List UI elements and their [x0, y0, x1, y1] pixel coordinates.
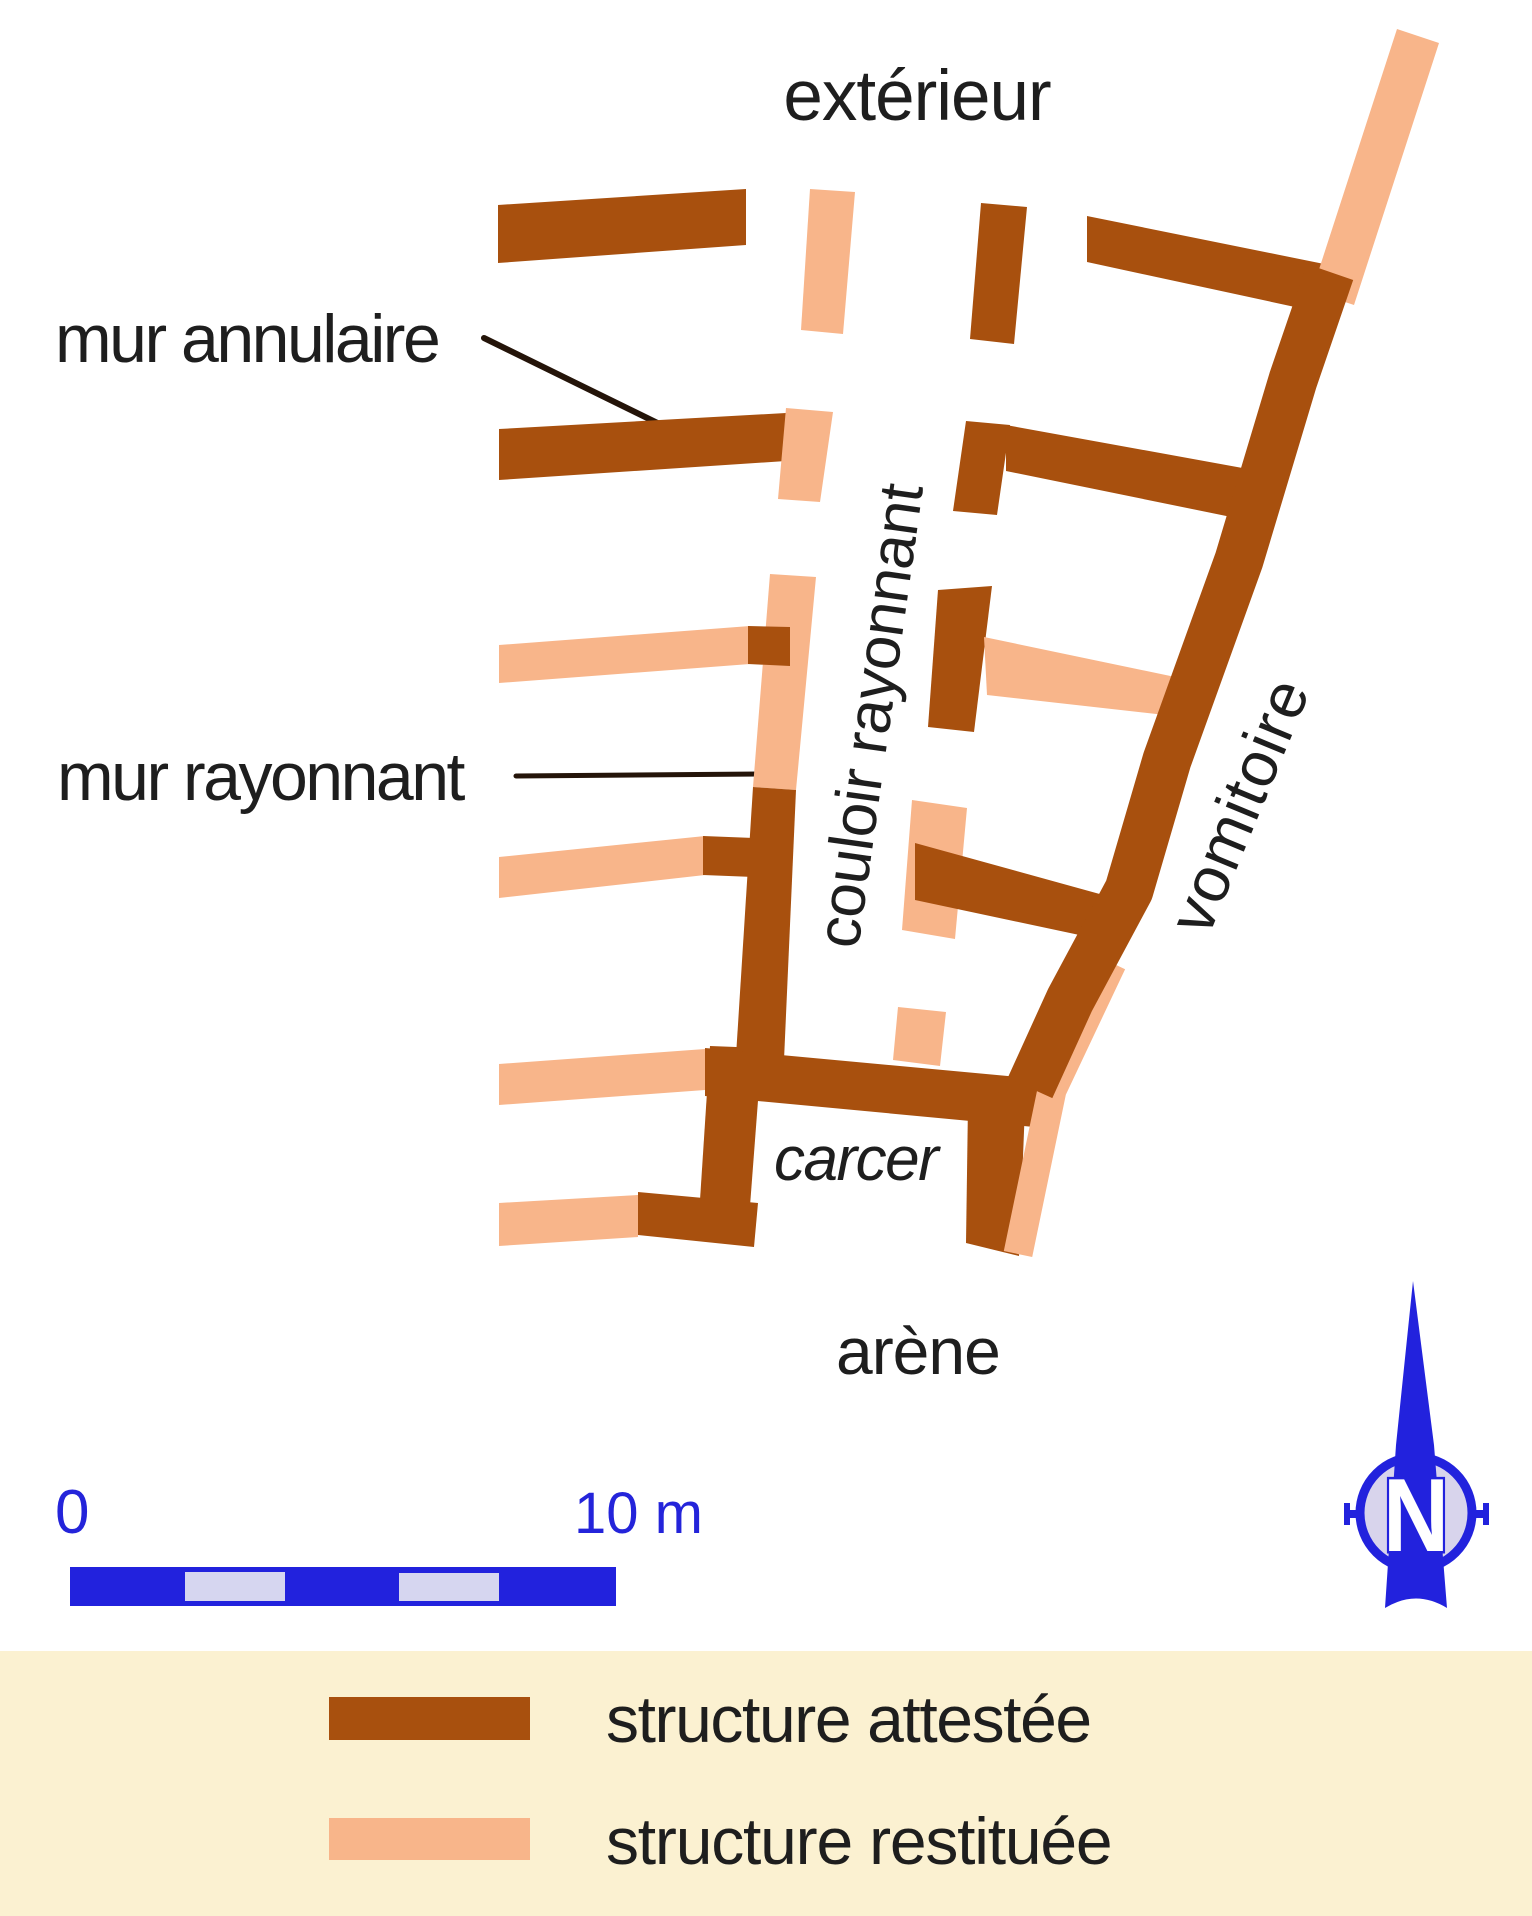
svg-text:N: N — [1383, 1458, 1449, 1574]
svg-text:mur rayonnant: mur rayonnant — [57, 739, 466, 815]
svg-text:10 m: 10 m — [574, 1481, 703, 1546]
svg-text:structure restituée: structure restituée — [606, 1804, 1111, 1878]
svg-text:structure attestée: structure attestée — [606, 1682, 1091, 1756]
svg-text:carcer: carcer — [774, 1125, 941, 1194]
svg-text:mur annulaire: mur annulaire — [55, 301, 438, 377]
svg-text:0: 0 — [55, 1478, 89, 1547]
svg-text:extérieur: extérieur — [783, 57, 1051, 136]
svg-text:arène: arène — [836, 1314, 1000, 1388]
